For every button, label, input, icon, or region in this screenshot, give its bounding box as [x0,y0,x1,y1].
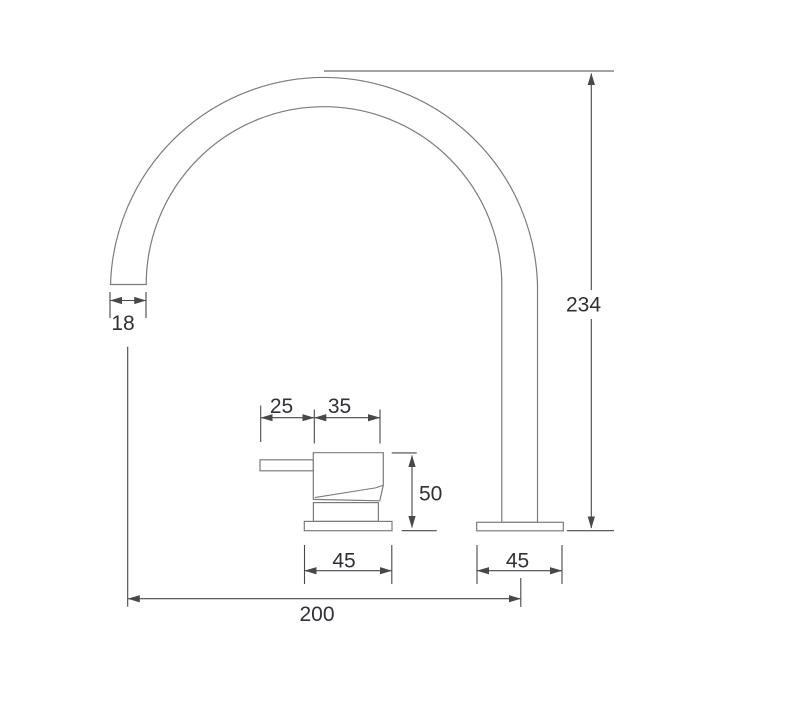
dim-label-handle-body-width: 35 [328,395,351,418]
spout-base-flange [477,522,564,531]
dim-label-handle-base-width: 45 [332,550,355,573]
dim-label-centre-to-centre: 200 [299,603,334,626]
dim-label-spout-base-width: 45 [506,550,529,573]
valve-body [313,453,383,501]
handle-lever [260,460,313,471]
dim-label-spout-height: 234 [566,294,601,317]
dim-label-spout-tip-width: 18 [111,312,134,335]
valve-base-band [313,503,378,522]
handle-base-flange [304,521,392,530]
faucet-outline [111,77,564,530]
dim-label-handle-body-height: 50 [419,483,442,506]
tap-dimension-drawing: 18 25 35 50 234 45 45 200 [0,0,800,713]
drawing-canvas: 18 25 35 50 234 45 45 200 [0,0,800,713]
dim-label-lever-overhang: 25 [270,395,293,418]
